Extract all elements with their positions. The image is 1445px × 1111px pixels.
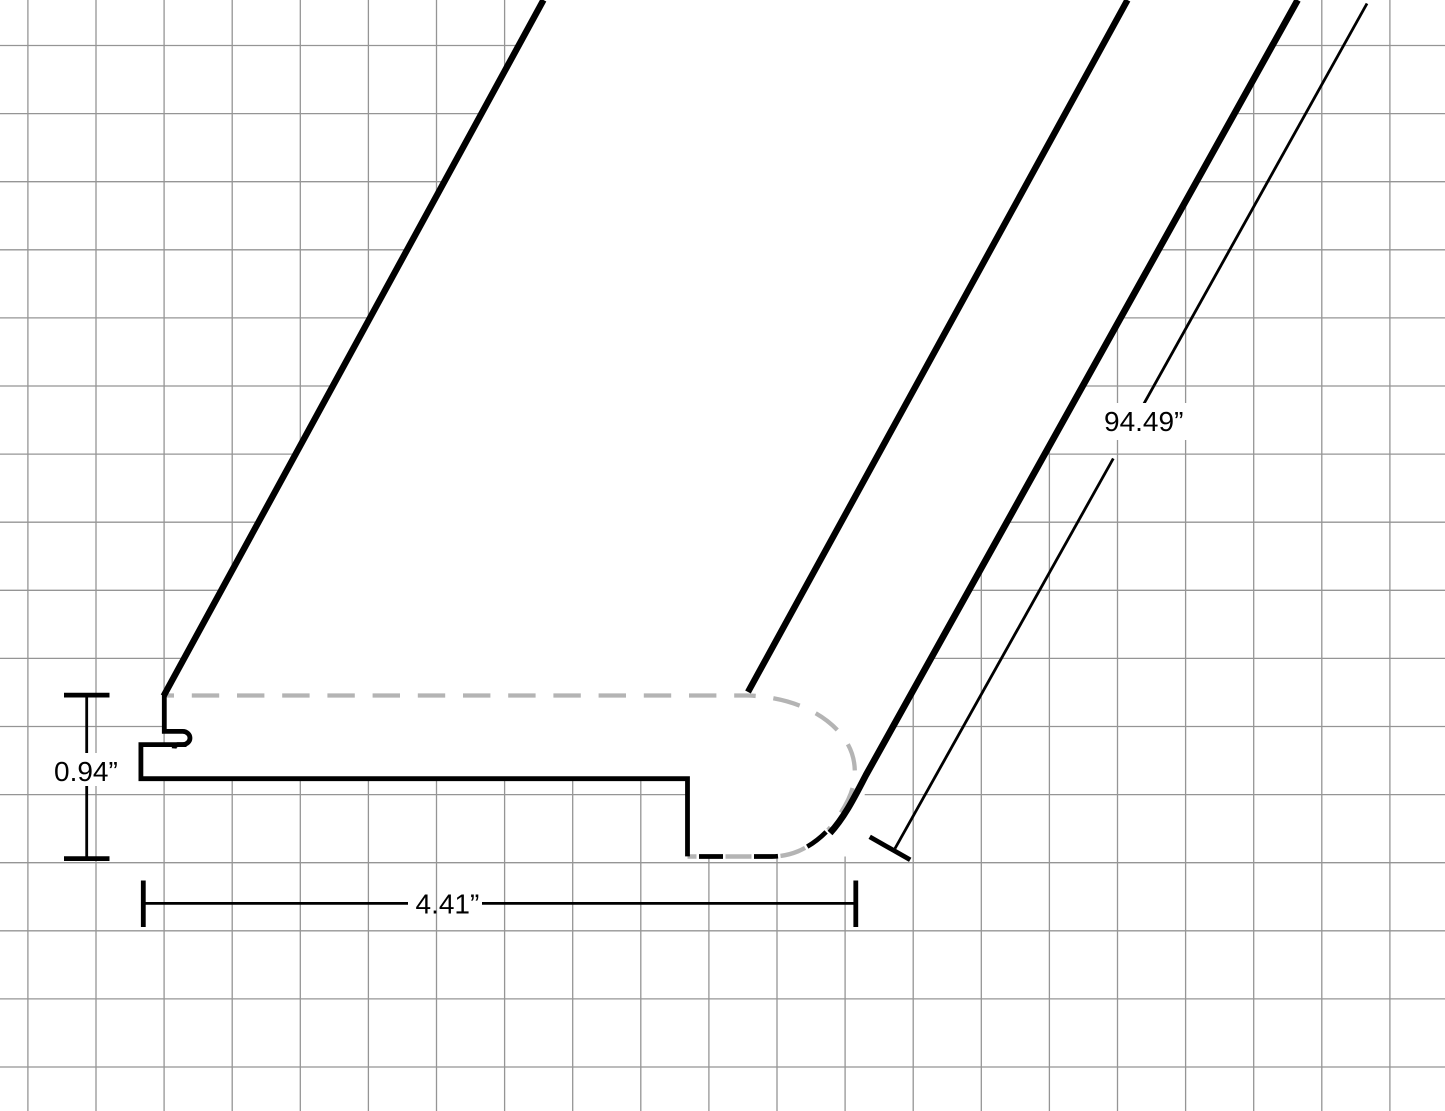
svg-text:0.94”: 0.94”	[54, 756, 118, 787]
svg-text:94.49”: 94.49”	[1104, 406, 1183, 437]
svg-text:4.41”: 4.41”	[416, 889, 480, 920]
